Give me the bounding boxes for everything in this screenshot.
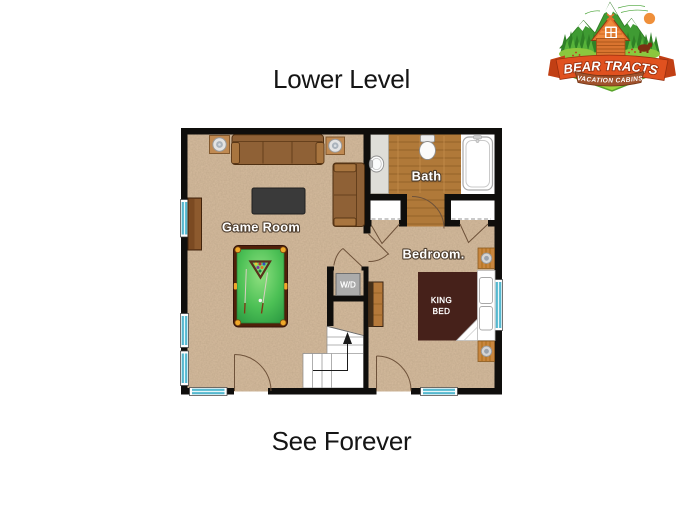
svg-text:BED: BED bbox=[433, 307, 451, 316]
svg-text:Game Room: Game Room bbox=[222, 220, 300, 235]
svg-text:KING: KING bbox=[431, 296, 452, 305]
svg-text:Bedroom.: Bedroom. bbox=[402, 247, 464, 262]
svg-text:W/D: W/D bbox=[340, 281, 356, 290]
svg-text:Bath: Bath bbox=[412, 169, 442, 184]
